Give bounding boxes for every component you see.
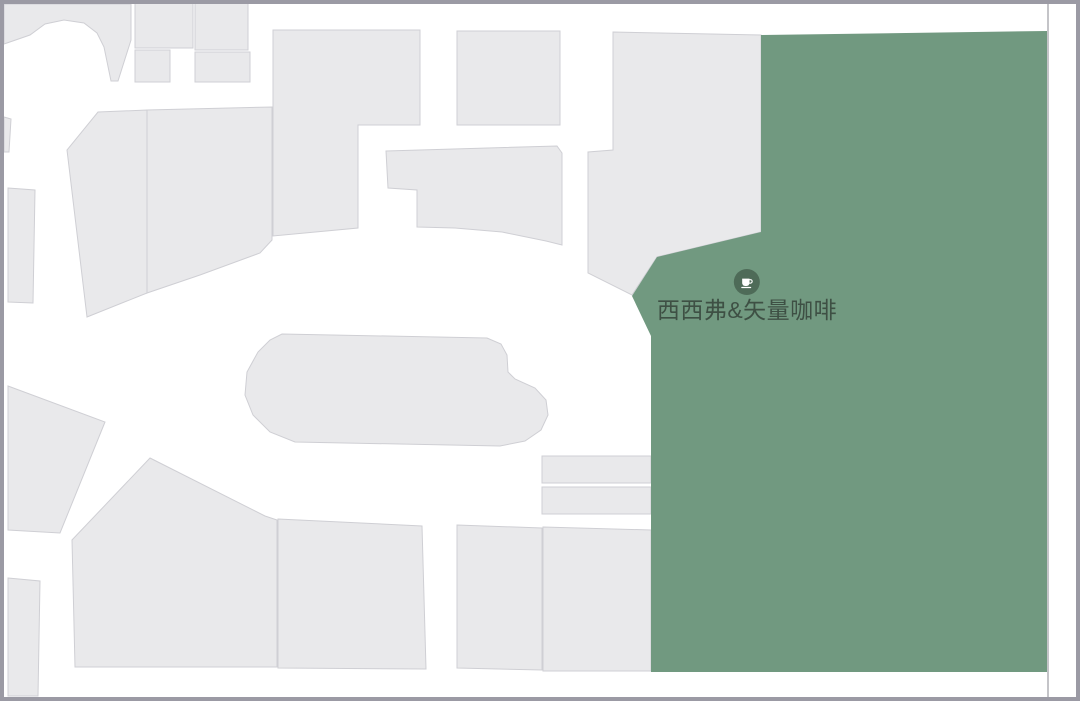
mall-unit-bottom-c (278, 519, 426, 669)
store-name-label: 西西弗&矢量咖啡 (657, 298, 837, 323)
mall-unit-top-a (135, 3, 193, 48)
mall-unit-center-island (245, 334, 548, 446)
mall-unit-top-e (273, 30, 420, 236)
mall-unit-left-sliver (4, 117, 11, 152)
mall-map-svg (0, 0, 1080, 701)
mall-unit-top-left-block (4, 4, 131, 81)
mall-unit-bottom-left-a (8, 386, 105, 533)
mall-unit-mid-left-b (147, 107, 272, 293)
mall-unit-top-b (135, 50, 170, 82)
mall-unit-top-c (195, 2, 248, 50)
mall-unit-mid-left-a (67, 110, 147, 317)
mall-unit-left-column (8, 188, 35, 303)
mall-unit-top-square (457, 31, 560, 125)
mall-unit-top-d (195, 52, 250, 82)
mall-unit-bottom-e (543, 527, 651, 671)
mall-unit-bottom-d (457, 525, 542, 670)
store-marker[interactable]: 西西弗&矢量咖啡 (657, 269, 837, 323)
mall-unit-kiosk-b (542, 487, 651, 514)
coffee-cup-icon (734, 269, 760, 295)
mall-unit-kiosk-a (542, 456, 651, 483)
mall-unit-bottom-left-strip (8, 578, 40, 696)
mall-unit-bottom-left-b (72, 458, 277, 667)
mall-unit-mid-band (386, 146, 562, 245)
